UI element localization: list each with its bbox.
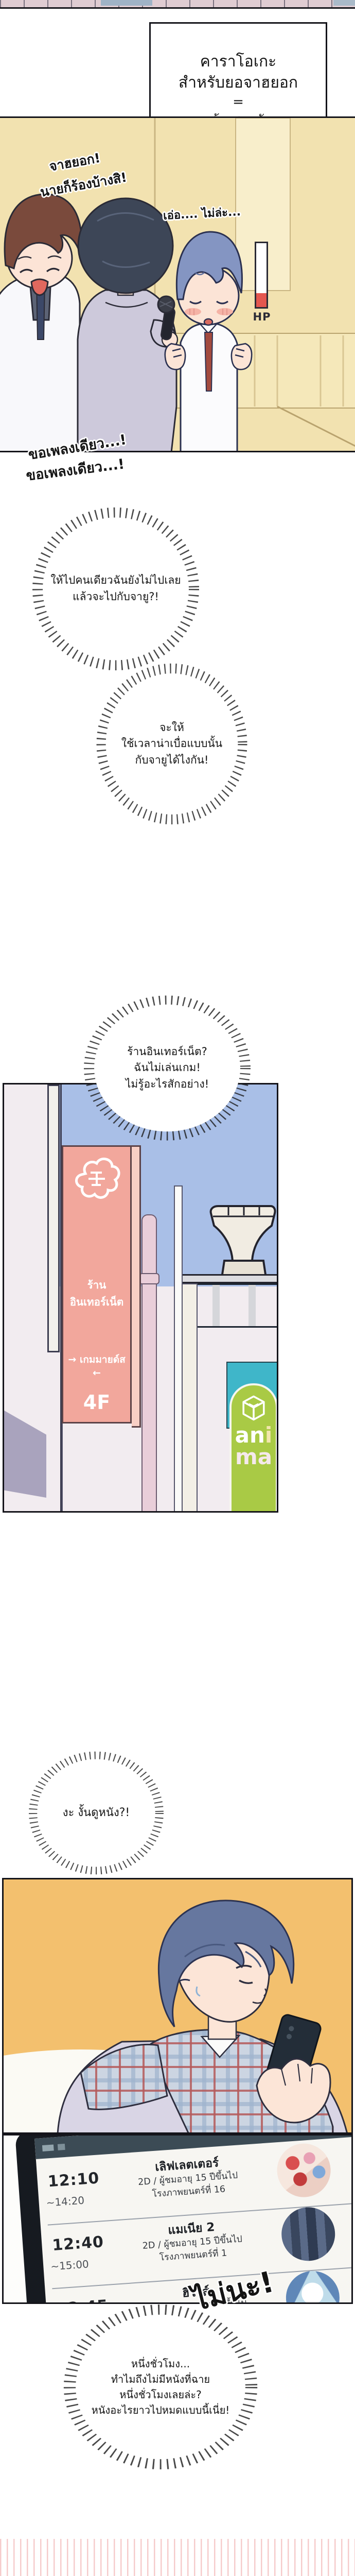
bubble-line: หนึ่งชั่วโมง... [131, 2356, 190, 2371]
battery-icon [58, 2144, 65, 2150]
internet-cafe-sign: ร้านอินเทอร์เน็ต → เกมมายด์ส ← 4F [62, 1145, 132, 1423]
pipe [141, 1214, 157, 1513]
white-pillar [174, 1185, 183, 1513]
arrow-left-icon: ← [93, 1367, 101, 1379]
bubble-line: ให้ไปคนเดียวฉันยังไม่ไปเลย [50, 572, 181, 589]
arrow-right-icon: → [68, 1354, 76, 1365]
movie-endtime: ~14:20 [46, 2194, 85, 2209]
street-scene-panel: ani ma ร้านอินเทอร์เน็ต → เกมมายด์ส ← 4F [3, 1083, 278, 1513]
tile-block-icon [101, 0, 152, 6]
character-brown-hair [0, 194, 82, 452]
anima-sign: ani ma [229, 1383, 278, 1513]
character-back-view [78, 198, 177, 452]
movie-time: 12:40 [51, 2233, 104, 2255]
sign-subtitle: → เกมมายด์ส ← [63, 1352, 130, 1379]
burst-bubble-1: ให้ไปคนเดียวฉันยังไม่ไปเลย แล้วจะไปกับจา… [30, 505, 202, 673]
roof-deck [179, 1274, 278, 1283]
movie-time: 12:10 [47, 2169, 100, 2191]
bubble-line: ใช้เวลาน่าเบื่อแบบนั้น [121, 736, 222, 752]
tile-block-icon [333, 0, 355, 6]
bubble-line: แล้วจะไปกับจายู?! [73, 589, 159, 605]
stripe-background [0, 2539, 355, 2576]
caption-line: = [151, 94, 326, 111]
movie-poster-mania-2 [280, 2206, 337, 2263]
showtimes-panel: 12:10 ~14:20 เลิฟเลตเตอร์ 2D / ผู้ชมอายุ… [2, 2134, 353, 2304]
burst-bubble-5: หนึ่งชั่วโมง... ทำไมถึงไม่มีหนังที่ฉาย ห… [61, 2302, 260, 2472]
sign-subtitle-text: เกมมายด์ส [80, 1354, 126, 1365]
webtoon-page: คาราโอเกะ สำหรับยอจาฮยอก = ห้องสูบพลัง [0, 0, 355, 2576]
phone-checking-panel [2, 1878, 353, 2134]
caption-line: สำหรับยอจาฮยอก [151, 73, 326, 93]
previous-panel-edge [0, 0, 355, 9]
cloud-logo-icon [70, 1155, 123, 1217]
burst-bubble-3: ร้านอินเทอร์เน็ต? ฉันไม่เล่นเกม! ไม่รู้อ… [81, 993, 253, 1143]
bubble-line: หนังอะไรยาวไปหมดแบบนี้เนี่ย! [92, 2402, 230, 2418]
phone-man-art [4, 1879, 353, 2134]
bubble-line: ไม่รู้อะไรสักอย่าง! [126, 1076, 209, 1093]
movie-endtime: ~15:00 [50, 2258, 90, 2273]
burst-bubble-2: จะให้ ใช้เวลาน่าเบื่อแบบนั้น กับจายูได้ไ… [94, 661, 250, 827]
signal-icon [42, 2144, 54, 2151]
karaoke-room-panel: HP จาฮยอก! นายก็ร้องบ้างสิ! เอ่อ.... ไม่… [0, 116, 355, 452]
movie-poster-heroes [284, 2269, 341, 2304]
hp-fill [256, 293, 267, 307]
bubble-line: ร้านอินเทอร์เน็ต? [127, 1044, 207, 1060]
sign-floor: 4F [63, 1391, 130, 1414]
bubble-line: หนึ่งชั่วโมงเลยล่ะ? [119, 2387, 202, 2402]
bubble-line: จะให้ [159, 720, 184, 736]
bubble-line: ฉันไม่เล่นเกม! [134, 1060, 201, 1076]
hp-label: HP [251, 311, 273, 323]
caption-line: คาราโอเกะ [151, 52, 326, 72]
bubble-line: กับจายูได้ไงกัน! [135, 752, 209, 769]
anima-text: ma [232, 1446, 276, 1468]
window-frame [47, 1084, 60, 1352]
sign-side-edge [132, 1145, 141, 1428]
bubble-line: งะ งั้นดูหนัง?! [63, 1804, 130, 1821]
cube-logo-icon [240, 1394, 268, 1421]
pipe-collar [139, 1273, 159, 1284]
bubble-line: ทำไมถึงไม่มีหนังที่ฉาย [111, 2371, 210, 2387]
movie-poster-love-letter [275, 2142, 332, 2199]
burst-bubble-4: งะ งั้นดูหนัง?! [27, 1750, 166, 1876]
sign-title: ร้านอินเทอร์เน็ต [63, 1277, 130, 1311]
hp-gauge [255, 242, 268, 309]
